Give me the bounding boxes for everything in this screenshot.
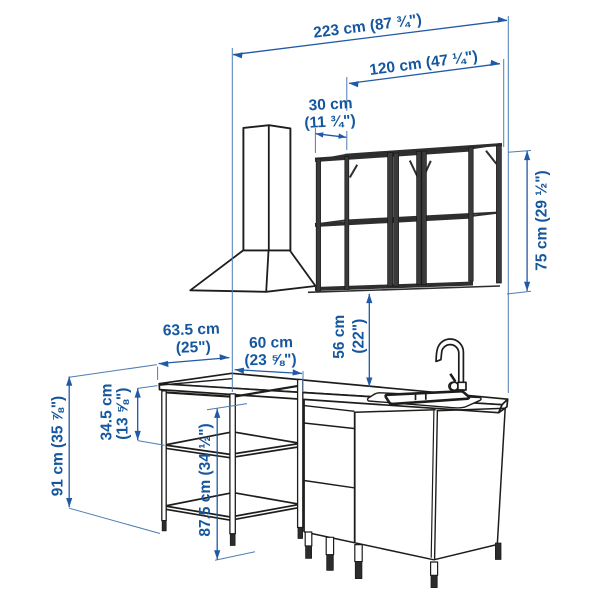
svg-text:91 cm (35 ⅞"): 91 cm (35 ⅞") [50, 396, 67, 496]
svg-text:87.5 cm (34 ½"): 87.5 cm (34 ½") [197, 423, 214, 536]
svg-text:(13 ⅝"): (13 ⅝") [114, 388, 131, 440]
svg-text:75 cm (29 ½"): 75 cm (29 ½") [534, 170, 551, 270]
svg-text:(22"): (22") [351, 319, 368, 354]
svg-text:(23 ⅝"): (23 ⅝") [244, 351, 296, 369]
svg-text:(11 ¾"): (11 ¾") [304, 112, 356, 132]
svg-text:63.5 cm: 63.5 cm [163, 321, 220, 340]
svg-text:60 cm: 60 cm [249, 334, 293, 352]
svg-text:34.5 cm: 34.5 cm [98, 384, 115, 441]
svg-text:(25"): (25") [176, 339, 211, 357]
svg-text:56 cm: 56 cm [331, 315, 348, 359]
svg-text:30 cm: 30 cm [308, 95, 353, 114]
